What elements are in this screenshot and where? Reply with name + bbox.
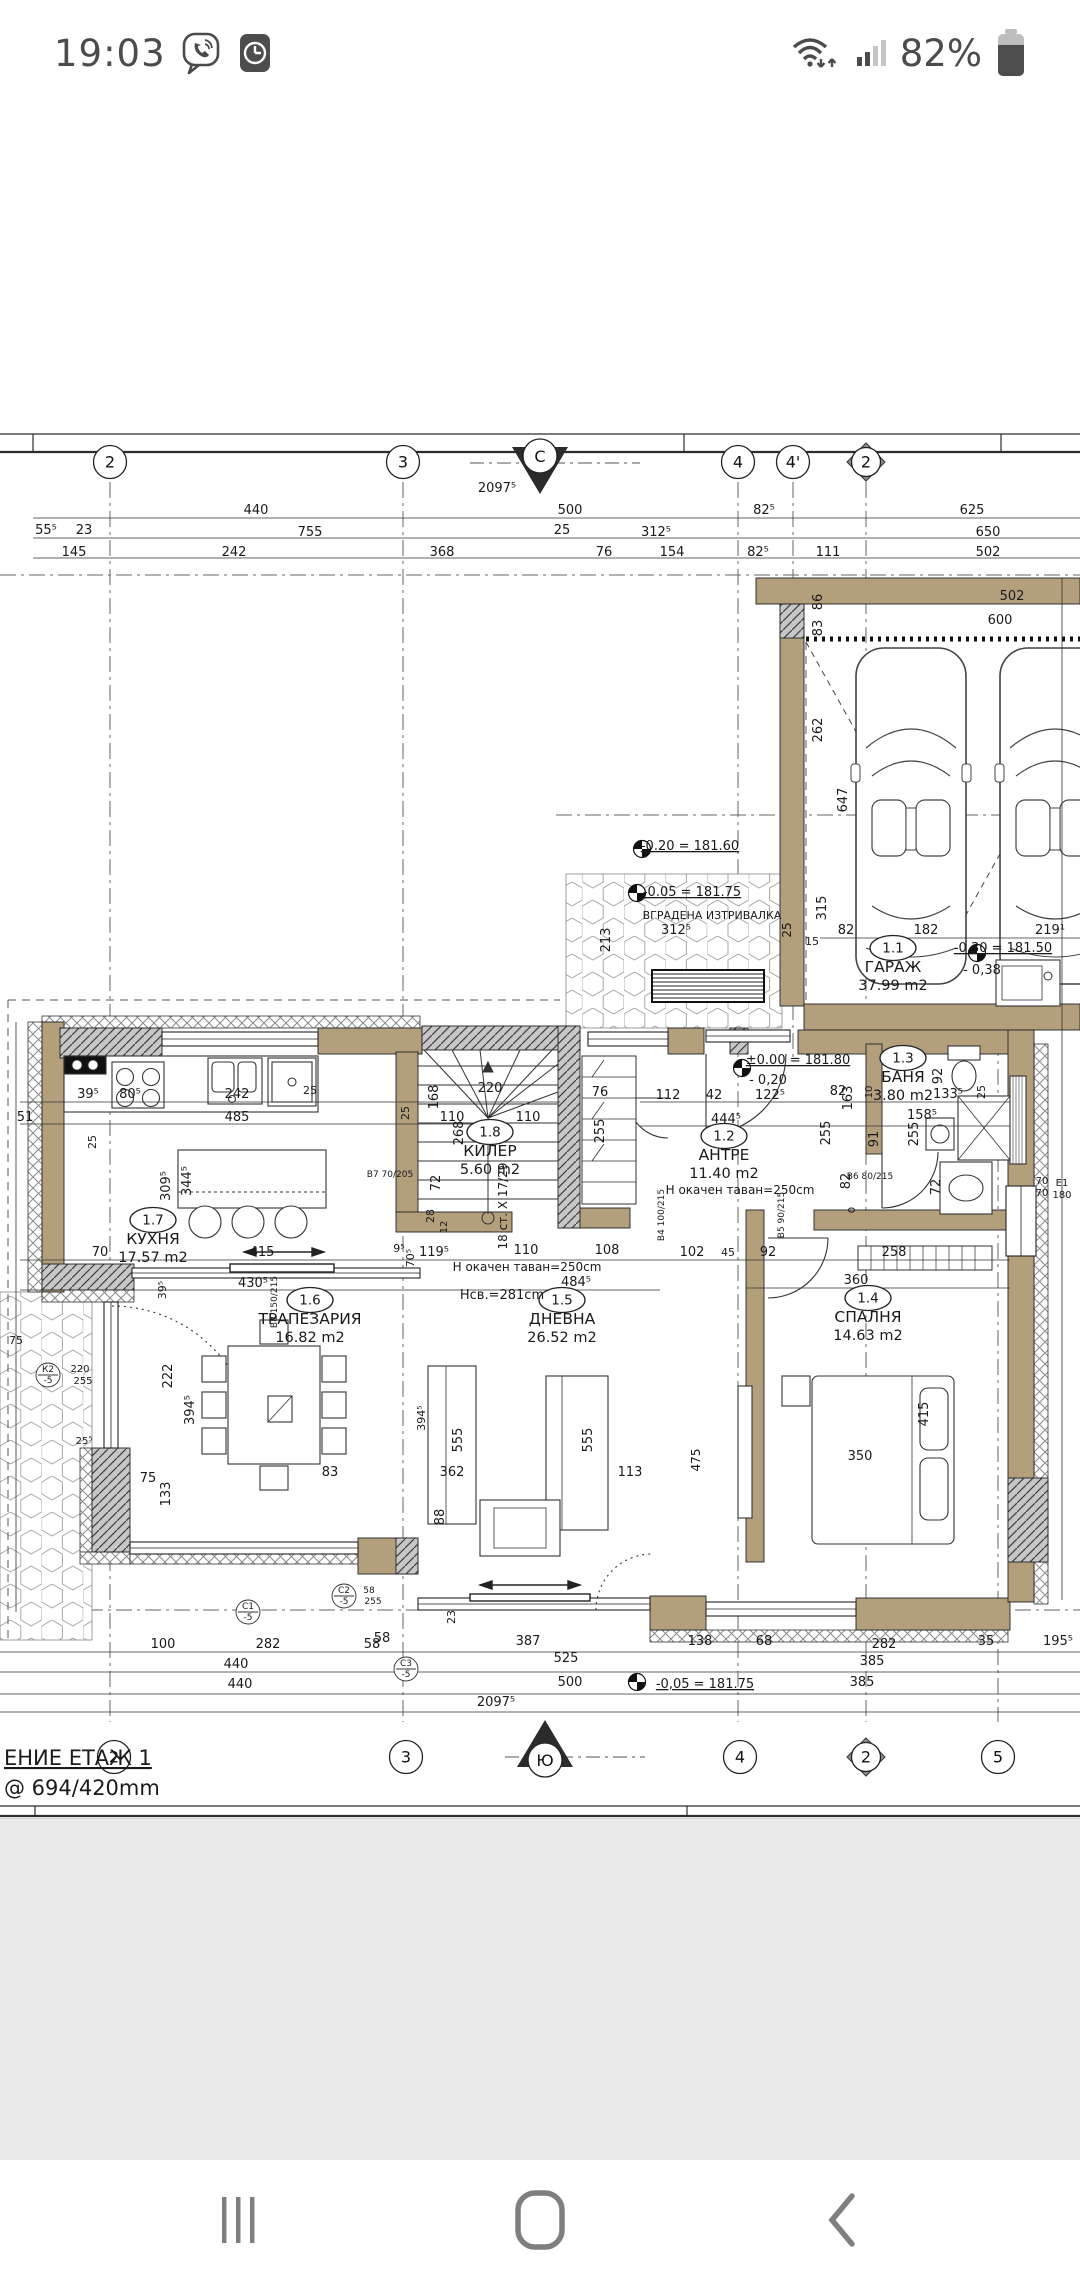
plan-label: 312⁵	[661, 923, 691, 938]
room-name: СПАЛНЯ	[834, 1308, 901, 1326]
plan-label: 72	[929, 1179, 944, 1196]
svg-text:4': 4'	[786, 453, 801, 472]
grid-bubble: 3	[387, 446, 420, 479]
plan-label: 258	[882, 1245, 907, 1260]
plan-label: 647	[836, 788, 851, 813]
plan-label: 394⁵	[415, 1405, 428, 1430]
back-icon	[814, 2190, 874, 2250]
battery-icon	[996, 28, 1026, 78]
plan-label: 28	[424, 1209, 437, 1223]
plan-label: 262	[811, 718, 826, 743]
plan-label: 415	[917, 1402, 932, 1427]
plan-label: 180	[1052, 1190, 1071, 1201]
radiator	[1010, 1076, 1026, 1164]
plan-label: 58	[364, 1637, 381, 1652]
plan-label: 92	[931, 1068, 946, 1085]
grid-bubble: 2	[94, 446, 127, 479]
plan-label: ВГРАДЕНА ИЗТРИВАЛКА	[643, 909, 782, 922]
plan-label: 154	[660, 545, 685, 560]
plan-label: 555	[451, 1428, 466, 1453]
status-time: 19:03	[54, 32, 166, 75]
plan-label: 86	[811, 594, 826, 611]
plan-label: 39⁵	[156, 1281, 169, 1299]
plan-label: ЕНИЕ ЕТАЖ 1	[4, 1746, 152, 1770]
grid-bubble: 4'	[777, 446, 810, 479]
svg-text:4: 4	[735, 1748, 745, 1767]
plan-label: 385	[860, 1654, 885, 1669]
plan-label: 444⁵	[711, 1112, 741, 1127]
svg-text:3: 3	[398, 453, 408, 472]
plan-label: 111	[816, 545, 841, 560]
room-label: 1.8КИЛЕР5.60 m2	[460, 1120, 520, 1179]
plan-label: 80⁵	[119, 1087, 141, 1102]
plan-label: 385	[850, 1675, 875, 1690]
plan-label: 255	[364, 1597, 381, 1607]
grid-bubble: 5	[982, 1741, 1015, 1774]
plan-label: 360	[844, 1273, 869, 1288]
svg-text:2: 2	[105, 453, 115, 472]
plan-label: К2	[42, 1365, 54, 1375]
back-button[interactable]	[734, 2160, 954, 2280]
plan-label: 394⁵	[183, 1395, 198, 1425]
plan-label: 440	[244, 503, 269, 518]
plan-label: 485	[225, 1110, 250, 1125]
plan-label: 76	[592, 1085, 609, 1100]
plan-label: 555	[581, 1428, 596, 1453]
room-tag: 1.3	[892, 1051, 913, 1067]
plan-label: 525	[554, 1651, 579, 1666]
room-area: 5.60 m2	[460, 1162, 520, 1178]
plan-label: 12	[439, 1221, 450, 1234]
plan-label: 35	[978, 1634, 995, 1649]
plan-label: 600	[988, 613, 1013, 628]
plan-label: 25	[303, 1084, 317, 1097]
svg-text:2: 2	[861, 453, 871, 472]
home-icon	[510, 2188, 570, 2252]
plan-label: С2	[338, 1586, 350, 1596]
plan-label: 315	[815, 896, 830, 921]
room-name: КУХНЯ	[126, 1230, 180, 1248]
plan-label: 23	[76, 523, 93, 538]
plan-label: 58	[363, 1586, 375, 1596]
plan-label: 2097⁵	[477, 1695, 515, 1710]
plan-label: 242	[222, 545, 247, 560]
svg-text:5: 5	[993, 1748, 1003, 1767]
plan-label: Н окачен таван=250cm	[453, 1260, 602, 1274]
room-label: 1.3БАНЯ3.80 m2	[873, 1046, 933, 1105]
plan-label: 213	[599, 928, 614, 953]
kitchen-island	[178, 1150, 326, 1208]
room-area: 26.52 m2	[527, 1330, 596, 1346]
plan-label: 222	[161, 1364, 176, 1389]
plan-label: 368	[430, 545, 455, 560]
doormat	[652, 970, 764, 1002]
room-name: ГАРАЖ	[865, 958, 922, 976]
plan-label: 75	[9, 1334, 23, 1347]
room-tag: 1.4	[857, 1291, 878, 1307]
plan-label: 219¹	[1035, 923, 1065, 938]
plan-label: 430⁵	[238, 1276, 268, 1291]
phone-screen: 2344'223425СЮ 1.1ГАРАЖ37.99 m21.2АНТРЕ11…	[0, 0, 1080, 2280]
plan-label: 268	[452, 1121, 467, 1146]
plan-label: 15	[805, 935, 819, 948]
plan-label: 133	[159, 1482, 174, 1507]
plan-label: 70	[1036, 1176, 1049, 1187]
svg-text:3: 3	[401, 1748, 411, 1767]
plan-label: 72	[429, 1175, 444, 1192]
plan-label: 502	[976, 545, 1001, 560]
plan-label: -5	[340, 1597, 349, 1607]
navigation-bar	[0, 2160, 1080, 2280]
svg-text:Ю: Ю	[536, 1751, 553, 1770]
plan-label: 2097⁵	[478, 481, 516, 496]
plan-label: С1	[242, 1602, 254, 1612]
plan-label: 70⁵	[404, 1249, 417, 1267]
grid-bubble: 2	[847, 1738, 885, 1776]
plan-label: Нсв.=281cm	[460, 1288, 544, 1303]
plan-label: - 0,20	[749, 1073, 787, 1088]
plan-label: 138	[688, 1634, 713, 1649]
plan-label: 500	[558, 1675, 583, 1690]
plan-label: 25⁵	[76, 1436, 93, 1447]
clock-app-icon	[238, 31, 272, 75]
plan-label: -5	[402, 1670, 411, 1680]
plan-label: -0.30 = 181.50	[954, 941, 1052, 956]
viewer-background	[0, 1818, 1080, 2161]
plan-label: 344⁵	[180, 1166, 195, 1196]
plan-label: В5 90/215	[777, 1192, 787, 1238]
plan-label: 195⁵	[1043, 1634, 1073, 1649]
grid-bubble: 2	[847, 443, 885, 481]
plan-label: @ 694/420mm	[4, 1776, 160, 1800]
plan-label: 25	[399, 1106, 412, 1120]
svg-text:2: 2	[861, 1748, 871, 1767]
living-furniture	[428, 1366, 752, 1556]
plan-label: 122⁵	[755, 1088, 785, 1103]
grid-bubble: 4	[724, 1741, 757, 1774]
plan-label: 102	[680, 1245, 705, 1260]
plan-label: 25	[780, 922, 794, 937]
plan-label: 755	[298, 525, 323, 540]
plan-label: 110	[514, 1243, 539, 1258]
plan-label: 25	[86, 1135, 99, 1149]
plan-label: 650	[976, 525, 1001, 540]
plan-label: -0,05 = 181.75	[656, 1677, 754, 1692]
room-label: 1.2АНТРЕ11.40 m2	[689, 1124, 758, 1183]
plan-label: 387	[516, 1634, 541, 1649]
plan-label: 42	[706, 1088, 723, 1103]
plan-label: 75	[140, 1471, 157, 1486]
plan-label: 119⁵	[419, 1245, 449, 1260]
plan-label: 255	[593, 1119, 608, 1144]
plan-label: 82⁵	[747, 545, 769, 560]
plan-label: -5	[44, 1376, 53, 1386]
plan-label: 282	[872, 1637, 897, 1652]
viber-icon	[180, 31, 224, 75]
plan-label: 309⁵	[159, 1171, 174, 1201]
plan-label: ±0.00 = 181.80	[746, 1053, 850, 1068]
recents-icon	[208, 2190, 268, 2250]
status-bar: 19:03	[0, 0, 1080, 96]
plan-label: 440	[228, 1677, 253, 1692]
plan-label: 350	[848, 1449, 873, 1464]
plan-label: 9⁵	[393, 1242, 404, 1255]
room-area: 16.82 m2	[275, 1330, 344, 1346]
plan-label: -0.05 = 181.75	[643, 885, 741, 900]
grid-bubble: 3	[390, 1741, 423, 1774]
plan-label: 484⁵	[561, 1275, 591, 1290]
room-name: АНТРЕ	[699, 1146, 750, 1164]
room-tag: 1.2	[713, 1129, 734, 1145]
room-area: 3.80 m2	[873, 1088, 933, 1104]
plan-label: 91	[867, 1131, 882, 1148]
room-tag: 1.8	[479, 1125, 500, 1141]
plan-label: 10	[864, 1086, 875, 1099]
plan-label: 25	[975, 1085, 988, 1099]
plan-label: 500	[558, 503, 583, 518]
plan-label: -0.20 = 181.60	[641, 839, 739, 854]
plan-label: 312⁵	[641, 525, 671, 540]
plan-label: -5	[244, 1613, 253, 1623]
room-tag: 1.1	[882, 941, 903, 957]
svg-text:С: С	[534, 447, 545, 466]
kitchen-fittings	[64, 1056, 326, 1238]
plan-label: 108	[595, 1243, 620, 1258]
room-area: 37.99 m2	[858, 978, 927, 994]
plan-label: 145	[62, 545, 87, 560]
plan-label: Н окачен таван=250cm	[666, 1183, 815, 1197]
plan-label: 242	[225, 1087, 250, 1102]
recents-button[interactable]	[128, 2160, 348, 2280]
plan-label: 255	[907, 1122, 922, 1147]
plan-label: В8 150/215	[270, 1276, 280, 1328]
room-label: 1.4СПАЛНЯ14.63 m2	[833, 1286, 902, 1345]
room-label: 1.7КУХНЯ17.57 m2	[118, 1208, 187, 1267]
plan-label: 70	[92, 1245, 109, 1260]
plan-label: 110	[516, 1110, 541, 1125]
plan-label: Е1	[1056, 1178, 1069, 1189]
plan-label: 113	[618, 1465, 643, 1480]
plan-label: 55⁵	[35, 523, 57, 538]
plan-label: - 0,38	[963, 963, 1001, 978]
plan-label: 68	[756, 1634, 773, 1649]
plan-label: 45	[721, 1246, 735, 1259]
signal-icon	[856, 31, 886, 75]
plan-label: 88	[433, 1509, 448, 1526]
wifi-icon	[790, 31, 842, 75]
room-name: КИЛЕР	[463, 1142, 516, 1160]
plan-label: 362	[440, 1465, 465, 1480]
plan-label: 255	[819, 1121, 834, 1146]
plan-label: В6 80/215	[847, 1172, 893, 1182]
plan-label: 0	[847, 1207, 858, 1213]
plan-label: 112	[656, 1088, 681, 1103]
room-tag: 1.6	[299, 1293, 320, 1309]
plan-label: 25	[554, 523, 571, 538]
plan-label: 625	[960, 503, 985, 518]
room-tag: 1.7	[142, 1213, 163, 1229]
room-name: ДНЕВНА	[529, 1310, 596, 1328]
plan-label: 70	[1036, 1188, 1049, 1199]
plan-label: 133⁵	[933, 1087, 963, 1102]
plan-label: 51	[17, 1110, 34, 1125]
grid-bubble: 4	[722, 446, 755, 479]
plan-label: 82	[838, 923, 855, 938]
level-marker-icon	[629, 1674, 646, 1691]
plan-label: 39⁵	[77, 1087, 99, 1102]
plan-label: 100	[151, 1637, 176, 1652]
plan-label: 163	[841, 1086, 856, 1111]
plan-label: С3	[400, 1659, 412, 1669]
plan-label: 168	[427, 1085, 442, 1110]
room-tag: 1.5	[551, 1293, 572, 1309]
room-area: 14.63 m2	[833, 1328, 902, 1344]
room-name: БАНЯ	[881, 1068, 925, 1086]
plan-label: 83	[322, 1465, 339, 1480]
plan-label: 282	[256, 1637, 281, 1652]
battery-percent: 82%	[900, 32, 982, 75]
plan-label: 158⁵	[907, 1108, 937, 1123]
plan-label: 76	[596, 545, 613, 560]
plan-label: 255	[73, 1376, 92, 1387]
plan-label: 82⁵	[753, 503, 775, 518]
plan-label: В7 70/205	[367, 1170, 413, 1180]
plan-label: 182	[914, 923, 939, 938]
plan-label: 92	[760, 1245, 777, 1260]
plan-label: 23	[445, 1610, 458, 1624]
svg-text:4: 4	[733, 453, 743, 472]
home-button[interactable]	[430, 2160, 650, 2280]
room-area: 17.57 m2	[118, 1250, 187, 1266]
plan-label: 83	[811, 620, 826, 637]
room-area: 11.40 m2	[689, 1166, 758, 1182]
plan-label: 220	[478, 1081, 503, 1096]
plan-label: 415	[250, 1245, 275, 1260]
plan-label: 475	[689, 1449, 703, 1472]
plan-label: 220	[70, 1364, 89, 1375]
plan-label: 502	[1000, 589, 1025, 604]
plan-label: 18 ст. X 17/29	[496, 1163, 510, 1250]
plan-label: 440	[224, 1657, 249, 1672]
